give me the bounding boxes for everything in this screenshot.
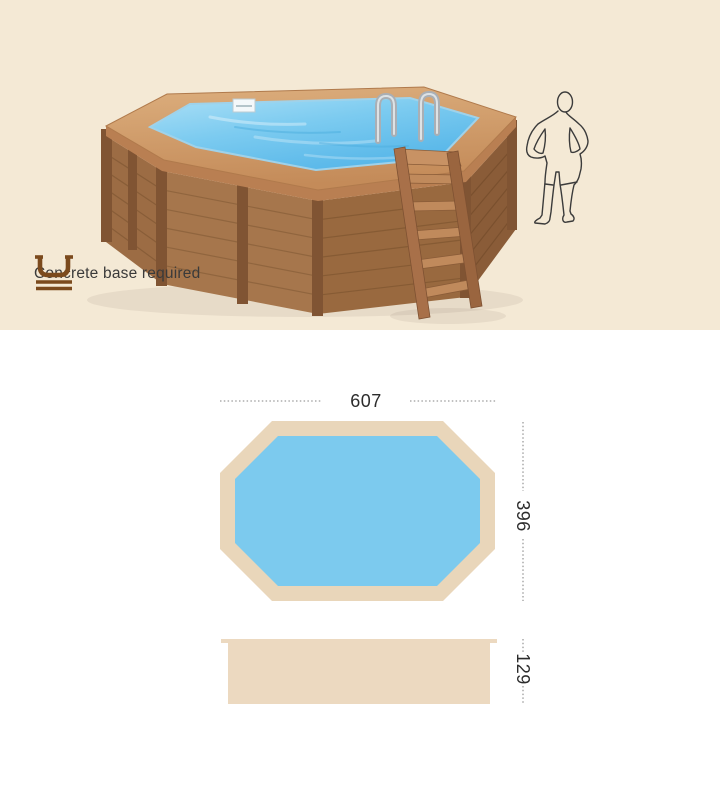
top-view-diagram bbox=[220, 421, 495, 601]
dimension-width: 607 bbox=[220, 391, 497, 411]
top-view-water bbox=[235, 436, 480, 586]
dimension-depth: 396 bbox=[513, 422, 533, 601]
dimension-height: 129 bbox=[513, 639, 533, 704]
side-view-rim bbox=[221, 639, 497, 643]
depth-value: 396 bbox=[513, 500, 533, 532]
ladder-ground-shadow bbox=[390, 308, 506, 324]
skimmer bbox=[233, 99, 255, 112]
side-view-body bbox=[228, 643, 490, 704]
concrete-base-icon bbox=[34, 254, 74, 292]
hero-section: Concrete base required bbox=[0, 0, 720, 330]
specs-section: 607 396 129 bbox=[0, 330, 720, 784]
concrete-note: Concrete base required bbox=[34, 254, 200, 294]
height-value: 129 bbox=[513, 653, 533, 685]
width-value: 607 bbox=[350, 391, 382, 411]
dimension-diagram: 607 396 129 bbox=[0, 330, 720, 784]
side-view-diagram bbox=[221, 639, 497, 704]
human-outline-figure bbox=[527, 92, 588, 224]
